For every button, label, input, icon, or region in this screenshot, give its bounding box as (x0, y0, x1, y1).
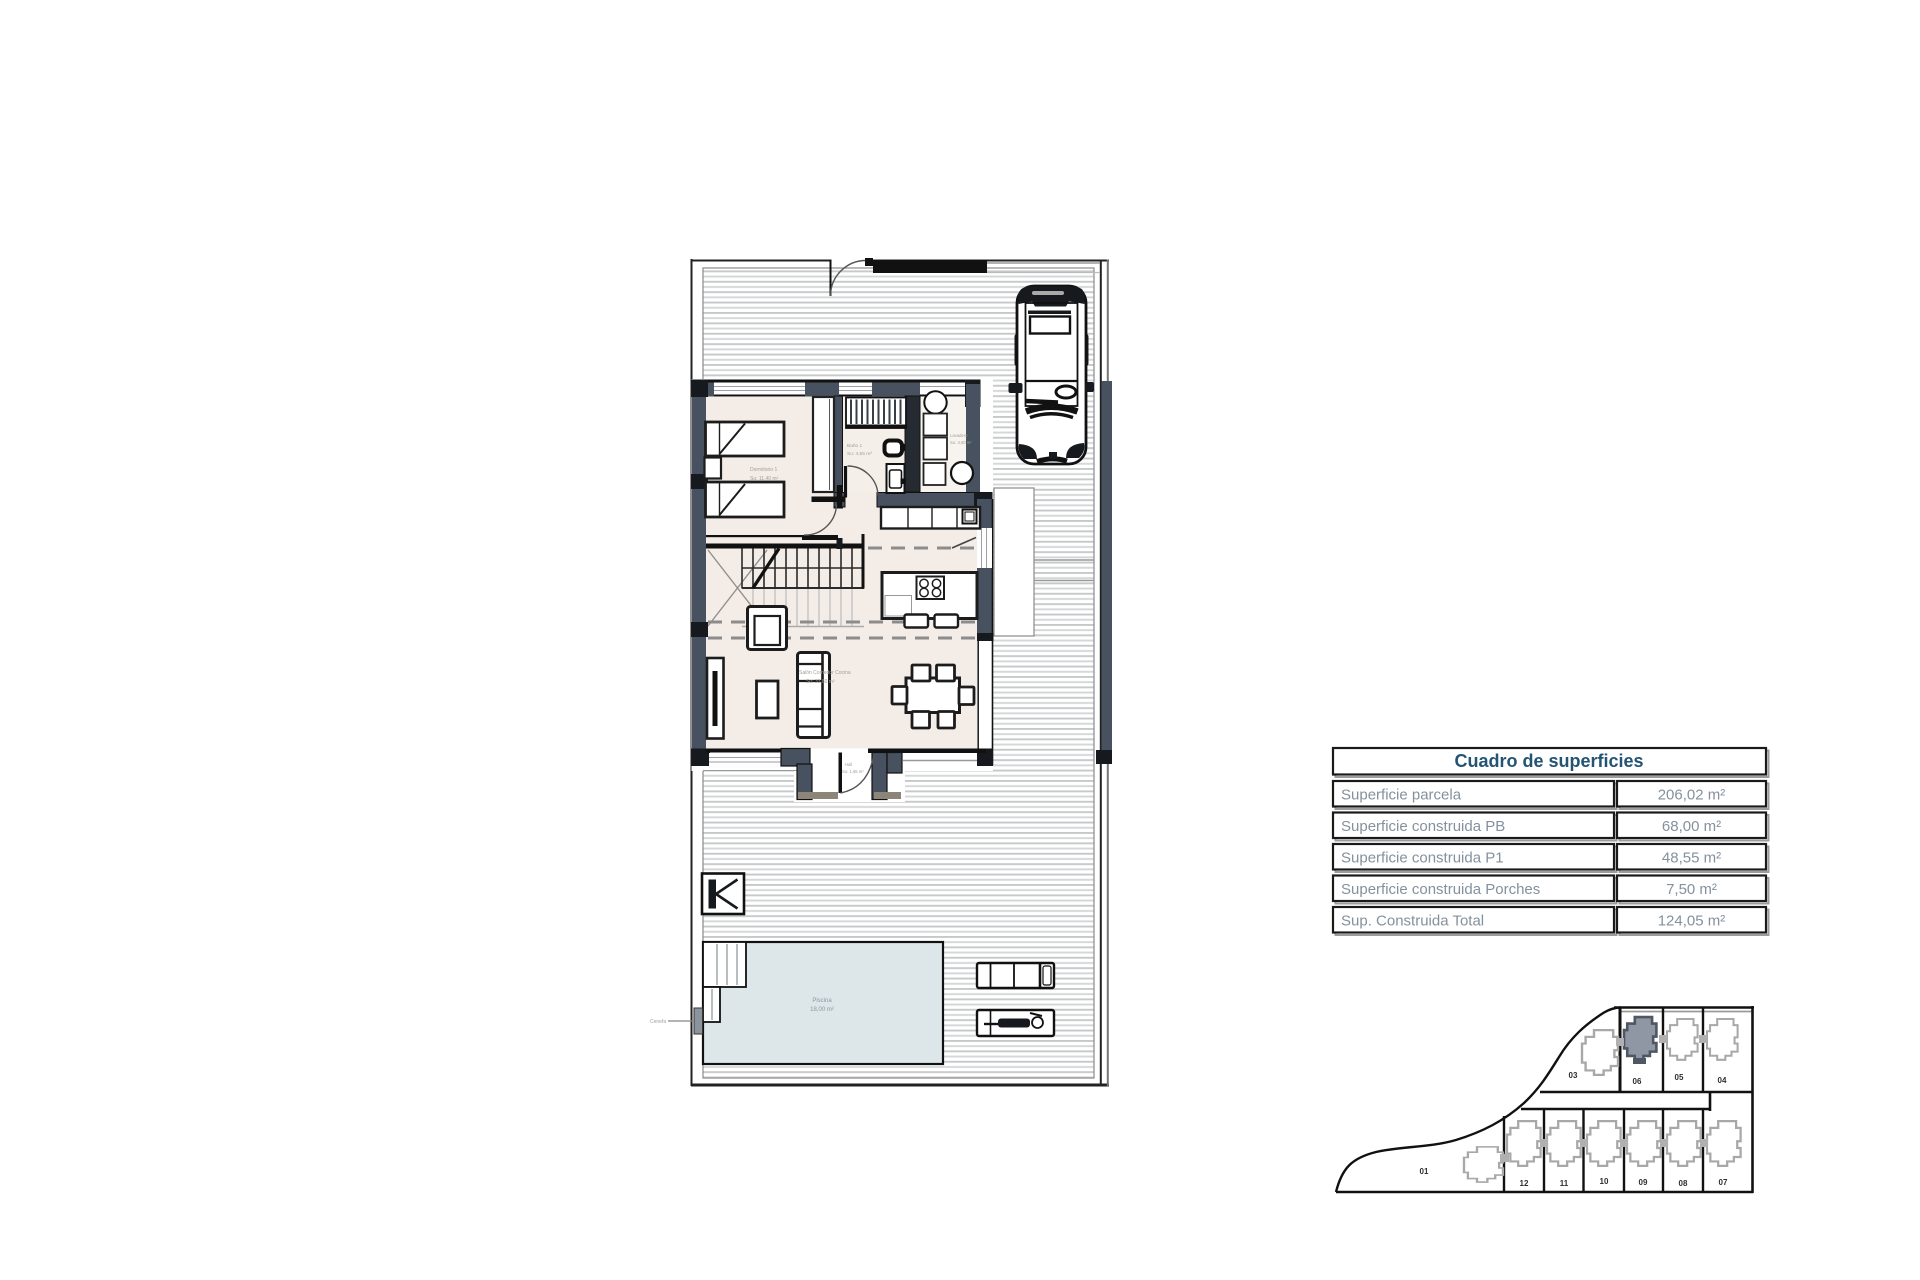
svg-text:04: 04 (1718, 1076, 1727, 1085)
svg-text:Su: 11,40 m²: Su: 11,40 m² (750, 476, 779, 482)
svg-text:Baño 1: Baño 1 (847, 443, 863, 449)
svg-text:Superficie parcela: Superficie parcela (1341, 787, 1462, 804)
svg-text:68,00 m²: 68,00 m² (1662, 818, 1721, 835)
svg-text:08: 08 (1679, 1179, 1688, 1188)
svg-text:01: 01 (1420, 1167, 1429, 1176)
svg-text:Su: 4,55 m²: Su: 4,55 m² (847, 451, 872, 457)
svg-text:7,50 m²: 7,50 m² (1666, 881, 1717, 898)
svg-text:Superficie construida Porches: Superficie construida Porches (1341, 881, 1540, 898)
svg-text:07: 07 (1719, 1178, 1728, 1187)
svg-text:124,05 m²: 124,05 m² (1658, 913, 1726, 930)
svg-text:Su: 1,65 m²: Su: 1,65 m² (842, 769, 864, 774)
svg-text:Lavadero: Lavadero (950, 433, 968, 438)
svg-text:Superficie construida P1: Superficie construida P1 (1341, 850, 1504, 867)
svg-text:Superficie construida PB: Superficie construida PB (1341, 818, 1505, 835)
svg-text:11: 11 (1560, 1179, 1569, 1188)
svg-text:Cuadro de superficies: Cuadro de superficies (1454, 751, 1643, 771)
svg-text:48,55 m²: 48,55 m² (1662, 850, 1721, 867)
svg-text:Salón Comedor Cocina: Salón Comedor Cocina (799, 670, 851, 676)
svg-text:Cenefa: Cenefa (650, 1019, 666, 1025)
svg-text:206,02 m²: 206,02 m² (1658, 787, 1726, 804)
svg-text:Hall: Hall (845, 762, 852, 767)
svg-text:Sup. Construida Total: Sup. Construida Total (1341, 913, 1484, 930)
svg-text:12: 12 (1520, 1179, 1529, 1188)
svg-text:10: 10 (1600, 1177, 1609, 1186)
svg-text:09: 09 (1639, 1178, 1648, 1187)
svg-text:Dormitorio 1: Dormitorio 1 (750, 467, 777, 473)
svg-text:06: 06 (1633, 1077, 1642, 1086)
svg-text:Piscina: Piscina (812, 998, 832, 1004)
svg-text:Su: 4,60 m²: Su: 4,60 m² (950, 440, 972, 445)
svg-text:05: 05 (1675, 1073, 1684, 1082)
svg-text:18,00 m²: 18,00 m² (810, 1007, 834, 1013)
svg-text:Su: 33,60 m²: Su: 33,60 m² (806, 679, 835, 685)
svg-text:03: 03 (1569, 1071, 1578, 1080)
